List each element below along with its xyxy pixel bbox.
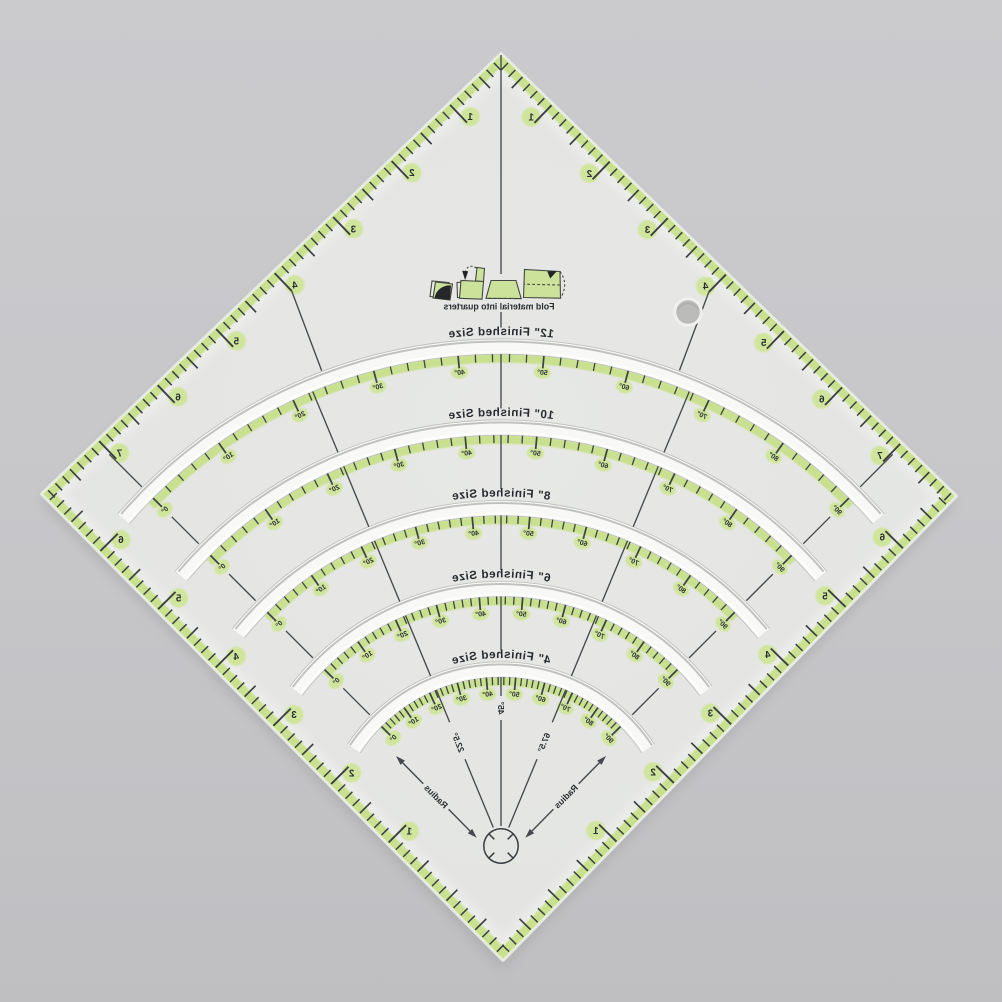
svg-text:6: 6 (879, 533, 885, 544)
svg-text:3: 3 (350, 224, 356, 235)
svg-text:40°: 40° (475, 610, 486, 619)
svg-text:5: 5 (175, 594, 181, 605)
svg-text:40°: 40° (461, 449, 472, 458)
svg-text:7: 7 (116, 449, 122, 460)
svg-text:6: 6 (819, 395, 825, 406)
svg-text:6: 6 (175, 392, 181, 403)
svg-text:2: 2 (586, 169, 592, 180)
svg-text:50°: 50° (537, 368, 548, 377)
svg-text:4: 4 (702, 282, 708, 293)
svg-text:40°: 40° (454, 368, 465, 377)
svg-text:4: 4 (233, 652, 239, 663)
svg-text:40°: 40° (468, 529, 479, 538)
svg-text:50°: 50° (530, 449, 541, 458)
svg-text:5: 5 (760, 338, 766, 349)
svg-text:50°: 50° (523, 529, 534, 538)
svg-text:2: 2 (409, 168, 415, 179)
svg-text:50°: 50° (508, 690, 519, 699)
svg-text:1: 1 (467, 112, 473, 123)
svg-text:50°: 50° (515, 610, 526, 619)
svg-text:3: 3 (291, 710, 297, 721)
svg-text:6: 6 (118, 535, 124, 546)
svg-text:2: 2 (348, 768, 354, 779)
svg-text:5: 5 (233, 336, 239, 347)
svg-text:40°: 40° (482, 690, 493, 699)
svg-text:3: 3 (707, 709, 713, 720)
svg-text:4: 4 (764, 650, 770, 661)
svg-text:2: 2 (650, 767, 656, 778)
svg-text:3: 3 (644, 225, 650, 236)
svg-text:5: 5 (822, 591, 828, 602)
svg-text:4: 4 (292, 280, 298, 291)
svg-text:1: 1 (593, 826, 599, 837)
svg-text:7: 7 (877, 451, 883, 462)
svg-text:45°: 45° (496, 701, 506, 715)
svg-text:Fold material into quarters: Fold material into quarters (443, 302, 554, 312)
svg-text:1: 1 (528, 112, 534, 123)
svg-text:1: 1 (406, 827, 412, 838)
